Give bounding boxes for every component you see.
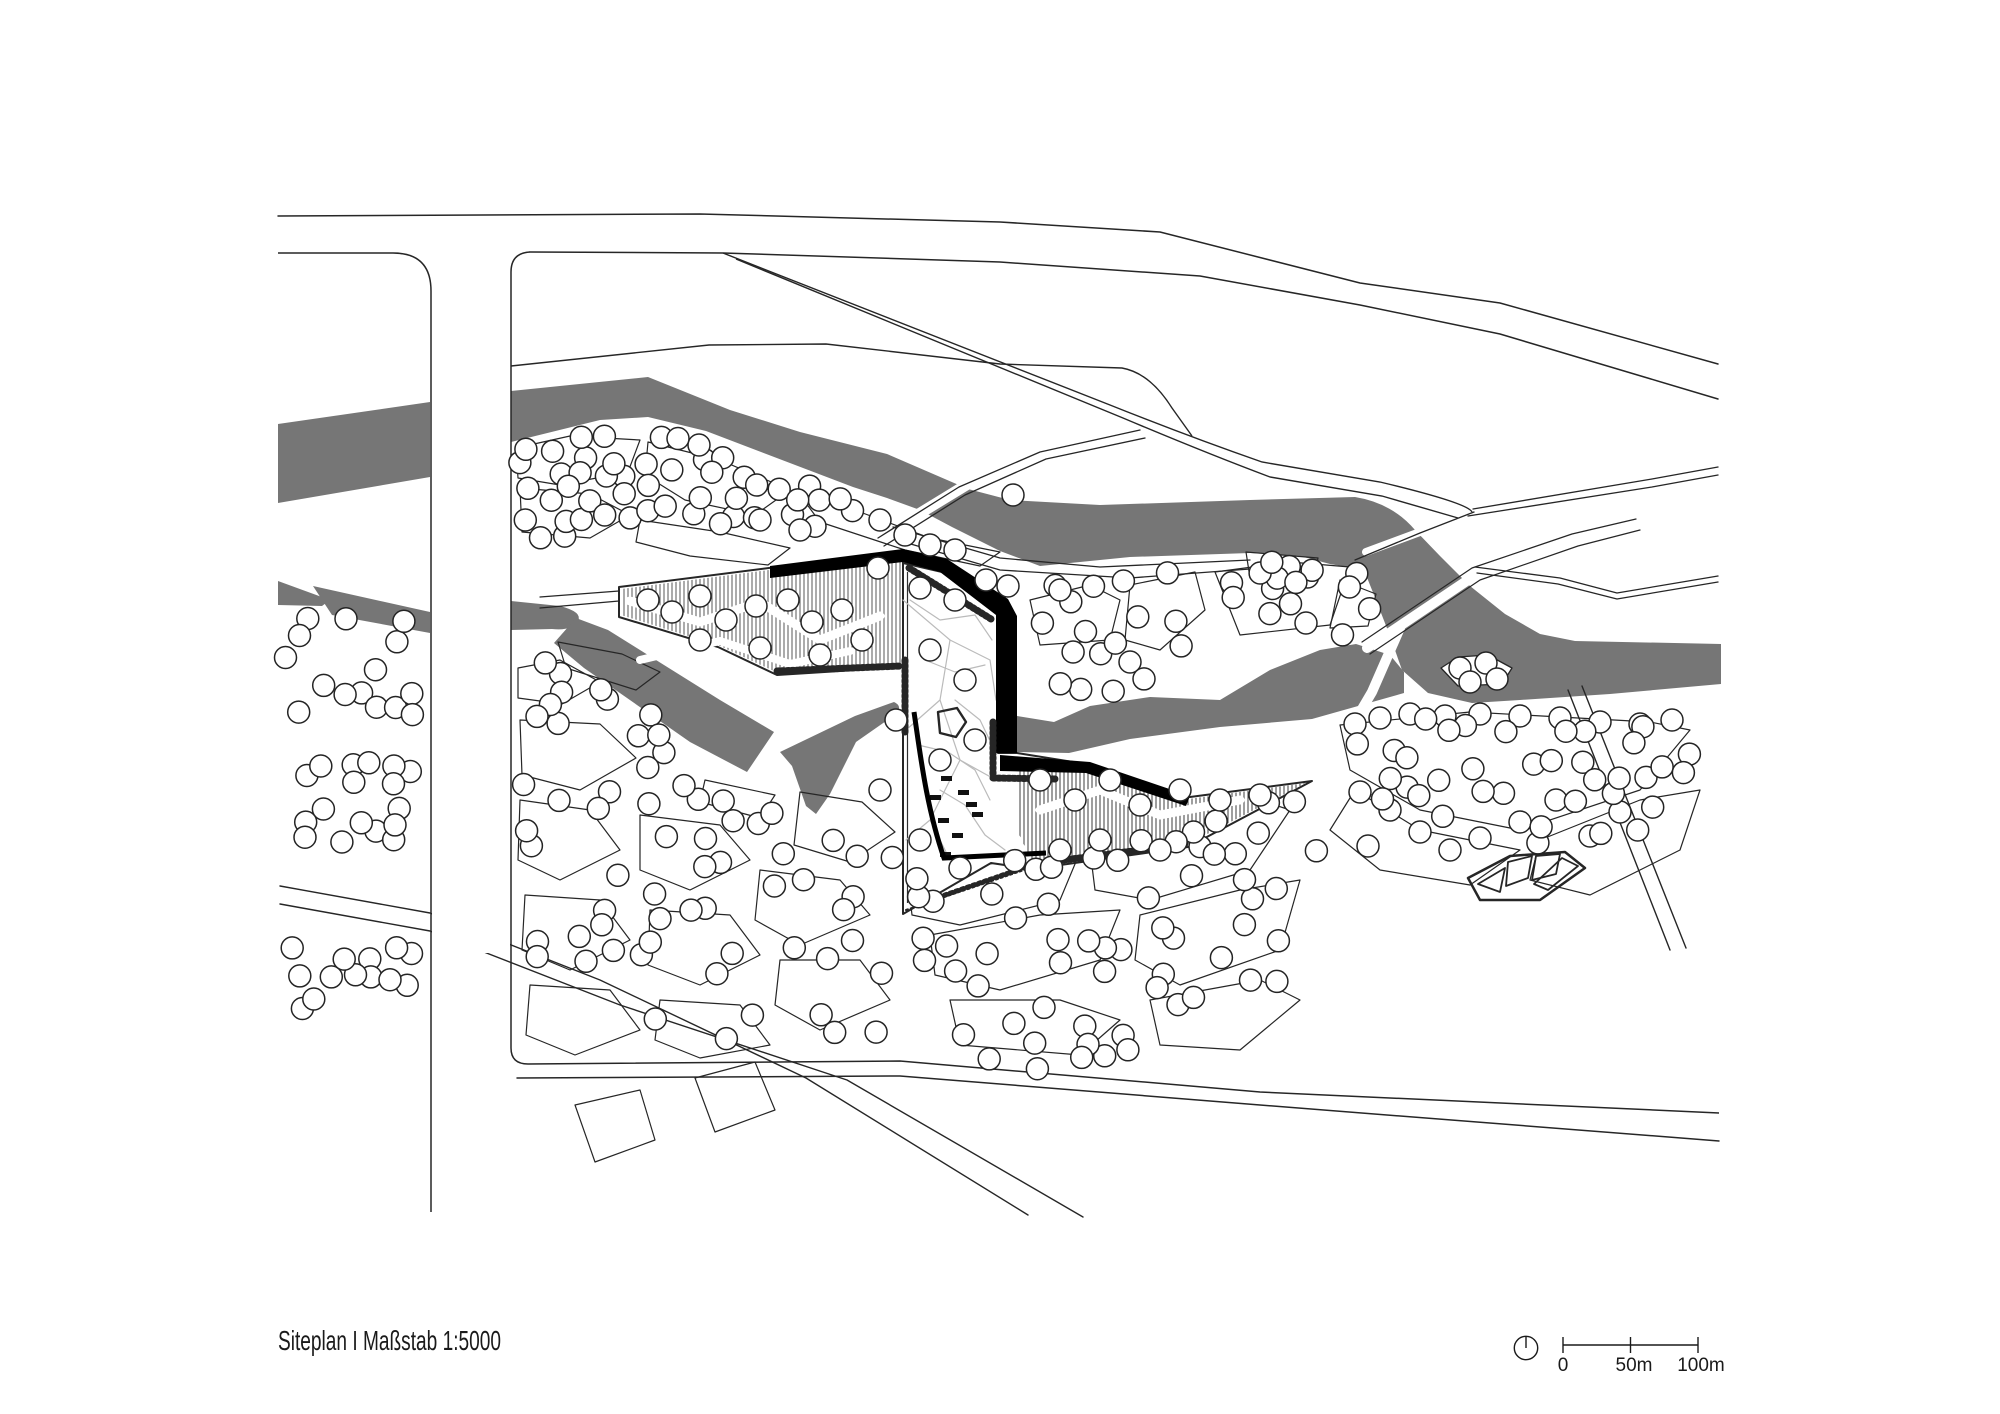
svg-text:100m: 100m — [1677, 1355, 1725, 1376]
svg-text:50m: 50m — [1616, 1355, 1653, 1376]
svg-text:Siteplan I Maßstab 1:5000: Siteplan I Maßstab 1:5000 — [278, 1325, 501, 1356]
svg-text:0: 0 — [1558, 1355, 1569, 1376]
